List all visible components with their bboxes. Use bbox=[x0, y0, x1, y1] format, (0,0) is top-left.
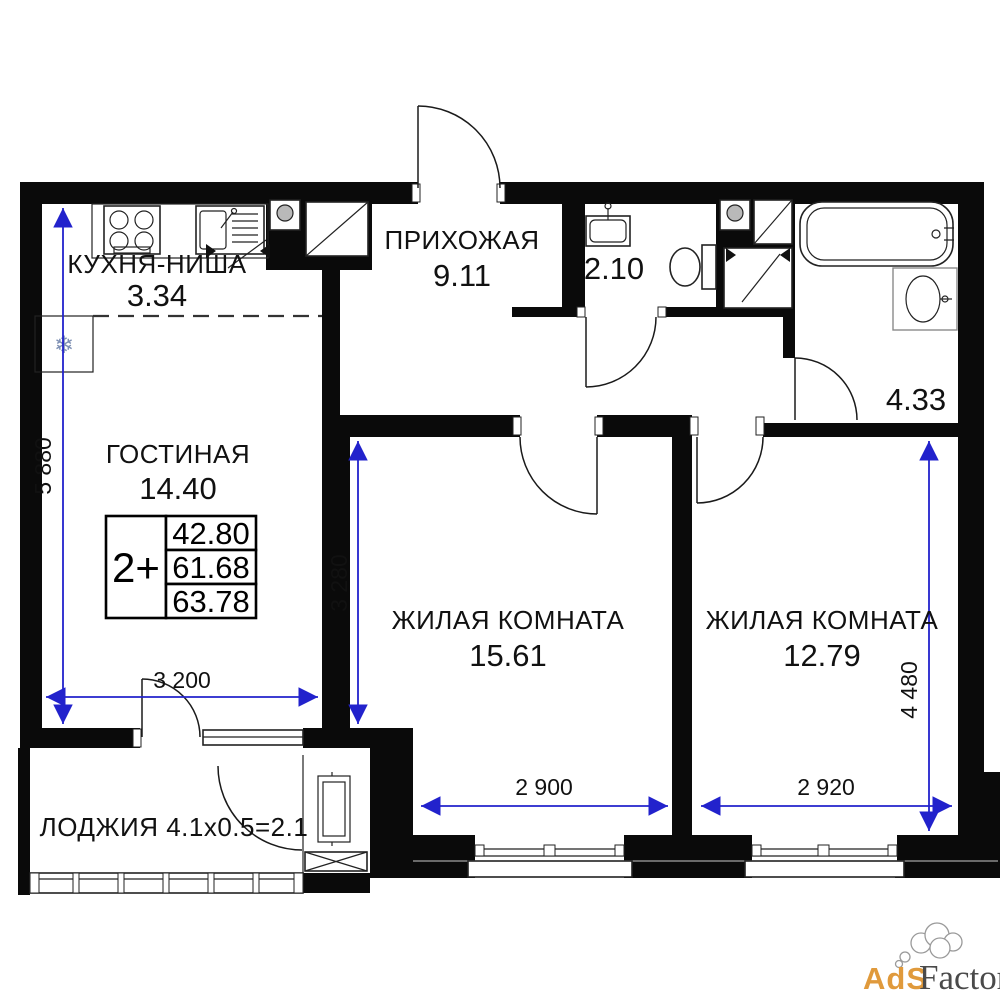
entrance-door bbox=[418, 106, 500, 188]
living-label: ГОСТИНАЯ bbox=[106, 439, 250, 469]
floor-plan-canvas: ❄ bbox=[0, 0, 1000, 1000]
fridge-icon: ❄ bbox=[35, 316, 93, 372]
snowflake-icon: ❄ bbox=[54, 332, 74, 359]
dim-label-4480: 4 480 bbox=[896, 661, 922, 719]
dim-label-3200: 3 200 bbox=[153, 667, 211, 693]
loggia-glazing bbox=[30, 873, 303, 893]
bedroom2-area: 12.79 bbox=[783, 638, 861, 673]
kitchen-area: 3.34 bbox=[127, 278, 187, 313]
hatch-panel bbox=[305, 852, 367, 871]
dim-label-2900: 2 900 bbox=[515, 774, 573, 800]
card-value-3: 63.78 bbox=[172, 584, 250, 619]
toilet-icon bbox=[670, 245, 716, 289]
bedroom1-door bbox=[520, 437, 597, 514]
apartment-type: 2+ bbox=[112, 544, 160, 591]
hallway-label: ПРИХОЖАЯ bbox=[385, 225, 540, 255]
shaft-niche-opening bbox=[724, 248, 792, 308]
card-value-1: 42.80 bbox=[172, 516, 250, 551]
dim-label-3280: 3 280 bbox=[326, 554, 352, 612]
ac-unit-icon bbox=[318, 772, 350, 846]
bedroom2-door bbox=[697, 437, 763, 503]
vent-shaft-icon bbox=[306, 202, 368, 256]
bedroom1-label: ЖИЛАЯ КОМНАТА bbox=[392, 605, 625, 635]
washing-machine-icon bbox=[270, 200, 300, 230]
bedroom1-area: 15.61 bbox=[469, 638, 547, 673]
living-room-window bbox=[203, 730, 303, 745]
dim-label-2920: 2 920 bbox=[797, 774, 855, 800]
washing-machine-2-icon bbox=[720, 200, 750, 230]
bathroom-area: 4.33 bbox=[886, 382, 946, 417]
card-value-2: 61.68 bbox=[172, 550, 250, 585]
bathroom-sink-icon bbox=[893, 268, 957, 330]
stove-icon bbox=[104, 206, 160, 254]
bedroom2-label: ЖИЛАЯ КОМНАТА bbox=[706, 605, 939, 635]
dim-label-5880: 5 880 bbox=[30, 437, 56, 495]
hallway-area: 9.11 bbox=[433, 258, 491, 293]
living-area: 14.40 bbox=[139, 471, 217, 506]
kitchen-fixtures: ❄ bbox=[35, 200, 368, 372]
washbasin-icon bbox=[586, 203, 630, 246]
bedroom1-window bbox=[468, 835, 632, 877]
vent-shaft-2-icon bbox=[754, 200, 792, 244]
watermark: AdS Factory bbox=[863, 923, 1000, 997]
wc-door bbox=[586, 317, 656, 387]
bedroom2-window bbox=[745, 835, 904, 877]
watermark-factory: Factory bbox=[919, 958, 1000, 997]
floor-plan: ❄ bbox=[0, 0, 1000, 1000]
kitchen-label: КУХНЯ-НИША bbox=[67, 249, 246, 279]
loggia-label: ЛОДЖИЯ 4.1x0.5=2.1 bbox=[40, 812, 309, 842]
apartment-card: 2+ 42.80 61.68 63.78 bbox=[106, 516, 256, 619]
wc-area: 2.10 bbox=[584, 251, 644, 286]
bathtub-icon bbox=[800, 202, 954, 266]
bathroom-door bbox=[795, 358, 857, 420]
